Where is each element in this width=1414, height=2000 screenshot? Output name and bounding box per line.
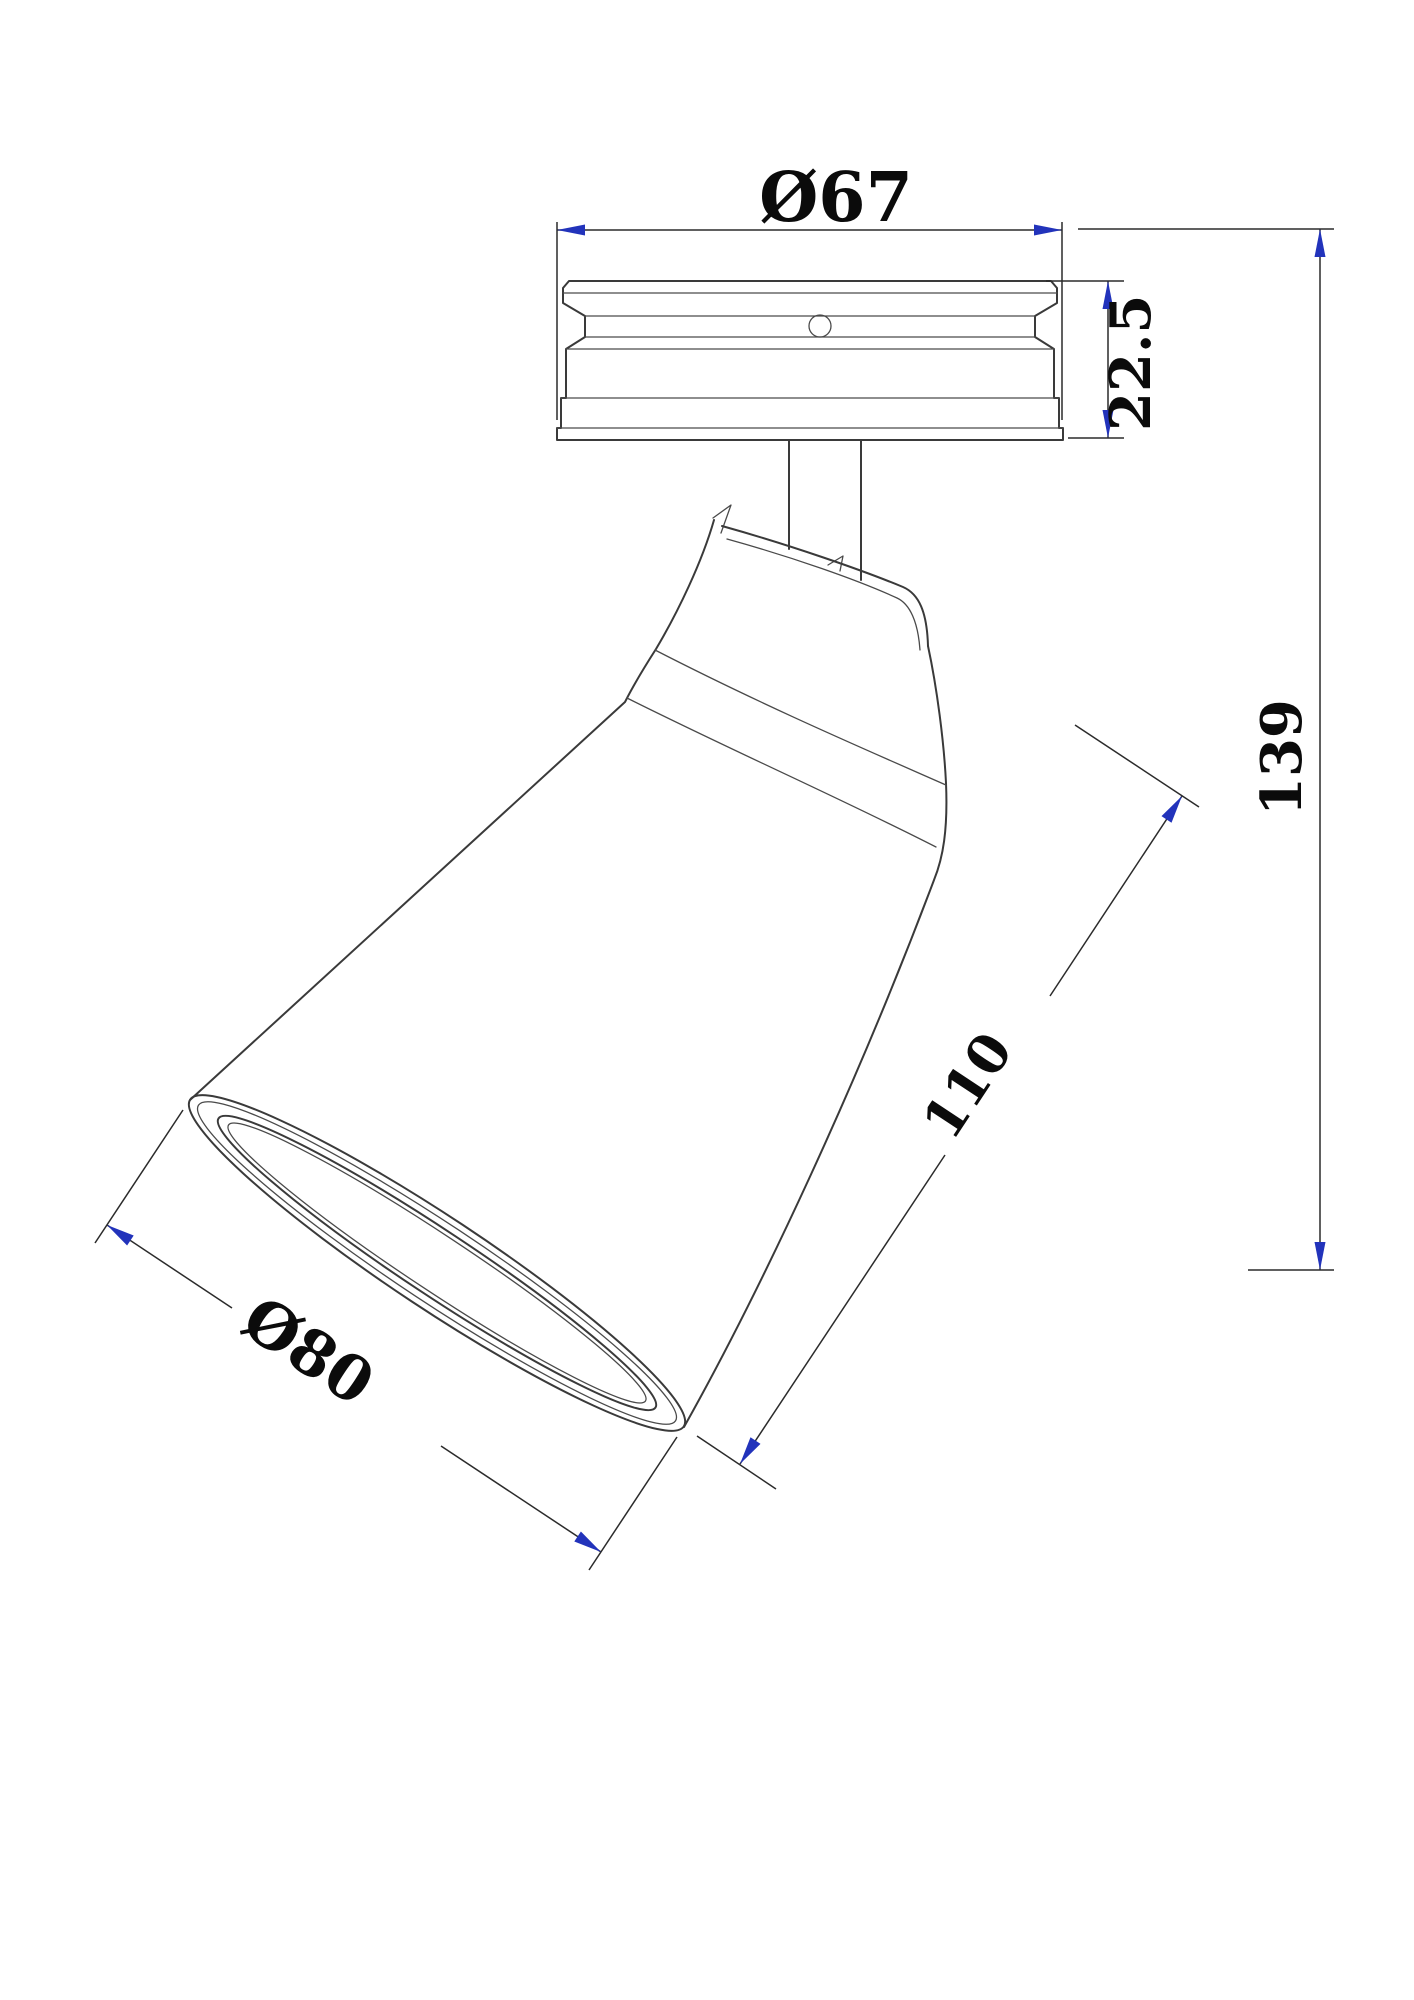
neck-rim-outer bbox=[722, 526, 928, 646]
dim-extension-line bbox=[697, 1436, 776, 1489]
dim-canopy-height: 22.5 bbox=[1046, 281, 1164, 438]
decor-band-lower bbox=[627, 698, 936, 847]
dim-extension-line bbox=[95, 1110, 183, 1243]
dim-head-length: 110 bbox=[697, 725, 1199, 1489]
spotlight-technical-drawing: Ø67 22.5 139 110 Ø80 bbox=[0, 0, 1414, 2000]
dim-arrow bbox=[1034, 225, 1062, 236]
dim-line bbox=[441, 1446, 601, 1552]
shade-rim bbox=[165, 1061, 709, 1464]
drawing-canvas: Ø67 22.5 139 110 Ø80 bbox=[0, 0, 1414, 2000]
rim-ellipse-outer bbox=[165, 1061, 709, 1464]
canopy-outline bbox=[557, 281, 1063, 440]
dim-arrow bbox=[1315, 229, 1326, 257]
screw-hole bbox=[809, 315, 831, 337]
decor-band-upper bbox=[655, 650, 946, 785]
dim-line bbox=[740, 1155, 945, 1464]
dim-label-shade-diameter: Ø80 bbox=[230, 1282, 387, 1420]
dim-arrow bbox=[1162, 796, 1183, 823]
dim-canopy-diameter: Ø67 bbox=[557, 158, 1062, 420]
dim-extension-line bbox=[1075, 725, 1199, 807]
dim-arrow bbox=[574, 1532, 601, 1553]
dim-line bbox=[1050, 796, 1182, 996]
dim-arrow bbox=[740, 1437, 761, 1464]
dim-arrow bbox=[1315, 1242, 1326, 1270]
rim-ellipse-lip bbox=[177, 1072, 698, 1454]
dim-label-canopy-height: 22.5 bbox=[1098, 295, 1164, 431]
neck-rim-inner bbox=[727, 539, 920, 650]
head-right-silhouette bbox=[684, 646, 946, 1427]
dim-arrow bbox=[557, 225, 585, 236]
rim-ellipse-inner bbox=[201, 1091, 674, 1434]
canopy bbox=[557, 281, 1063, 440]
head-left-silhouette bbox=[190, 520, 714, 1100]
dim-label-canopy-diameter: Ø67 bbox=[759, 158, 913, 238]
dim-arrow bbox=[107, 1225, 134, 1246]
dim-extension-line bbox=[589, 1437, 677, 1570]
dim-label-overall-height: 139 bbox=[1249, 699, 1315, 816]
dim-label-head-length: 110 bbox=[909, 1021, 1025, 1150]
